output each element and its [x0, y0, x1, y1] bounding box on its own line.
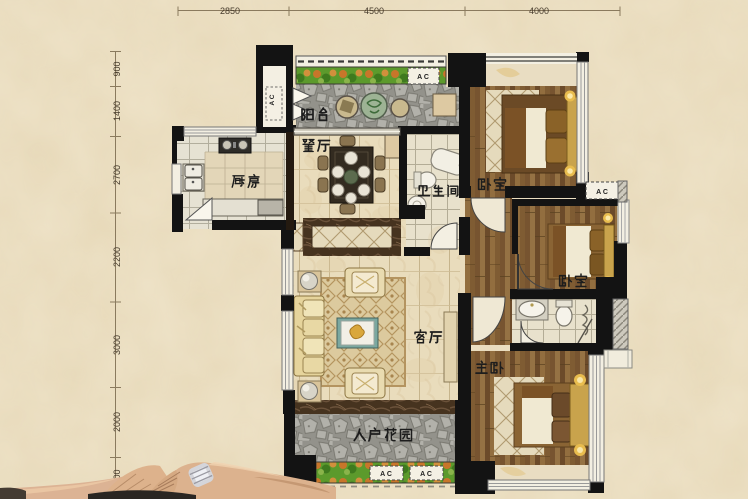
svg-text:2850: 2850 [220, 6, 240, 16]
svg-text:2200: 2200 [112, 247, 122, 267]
svg-text:A C: A C [417, 74, 429, 81]
svg-text:4500: 4500 [364, 6, 384, 16]
svg-text:4000: 4000 [529, 6, 549, 16]
svg-text:A C: A C [420, 471, 432, 478]
svg-text:900: 900 [112, 61, 122, 76]
svg-text:A C: A C [269, 94, 276, 105]
svg-text:A C: A C [596, 189, 608, 196]
svg-text:A C: A C [380, 471, 392, 478]
svg-text:1400: 1400 [112, 101, 122, 121]
svg-text:2000: 2000 [112, 412, 122, 432]
svg-text:3000: 3000 [112, 335, 122, 355]
svg-text:2700: 2700 [112, 165, 122, 185]
